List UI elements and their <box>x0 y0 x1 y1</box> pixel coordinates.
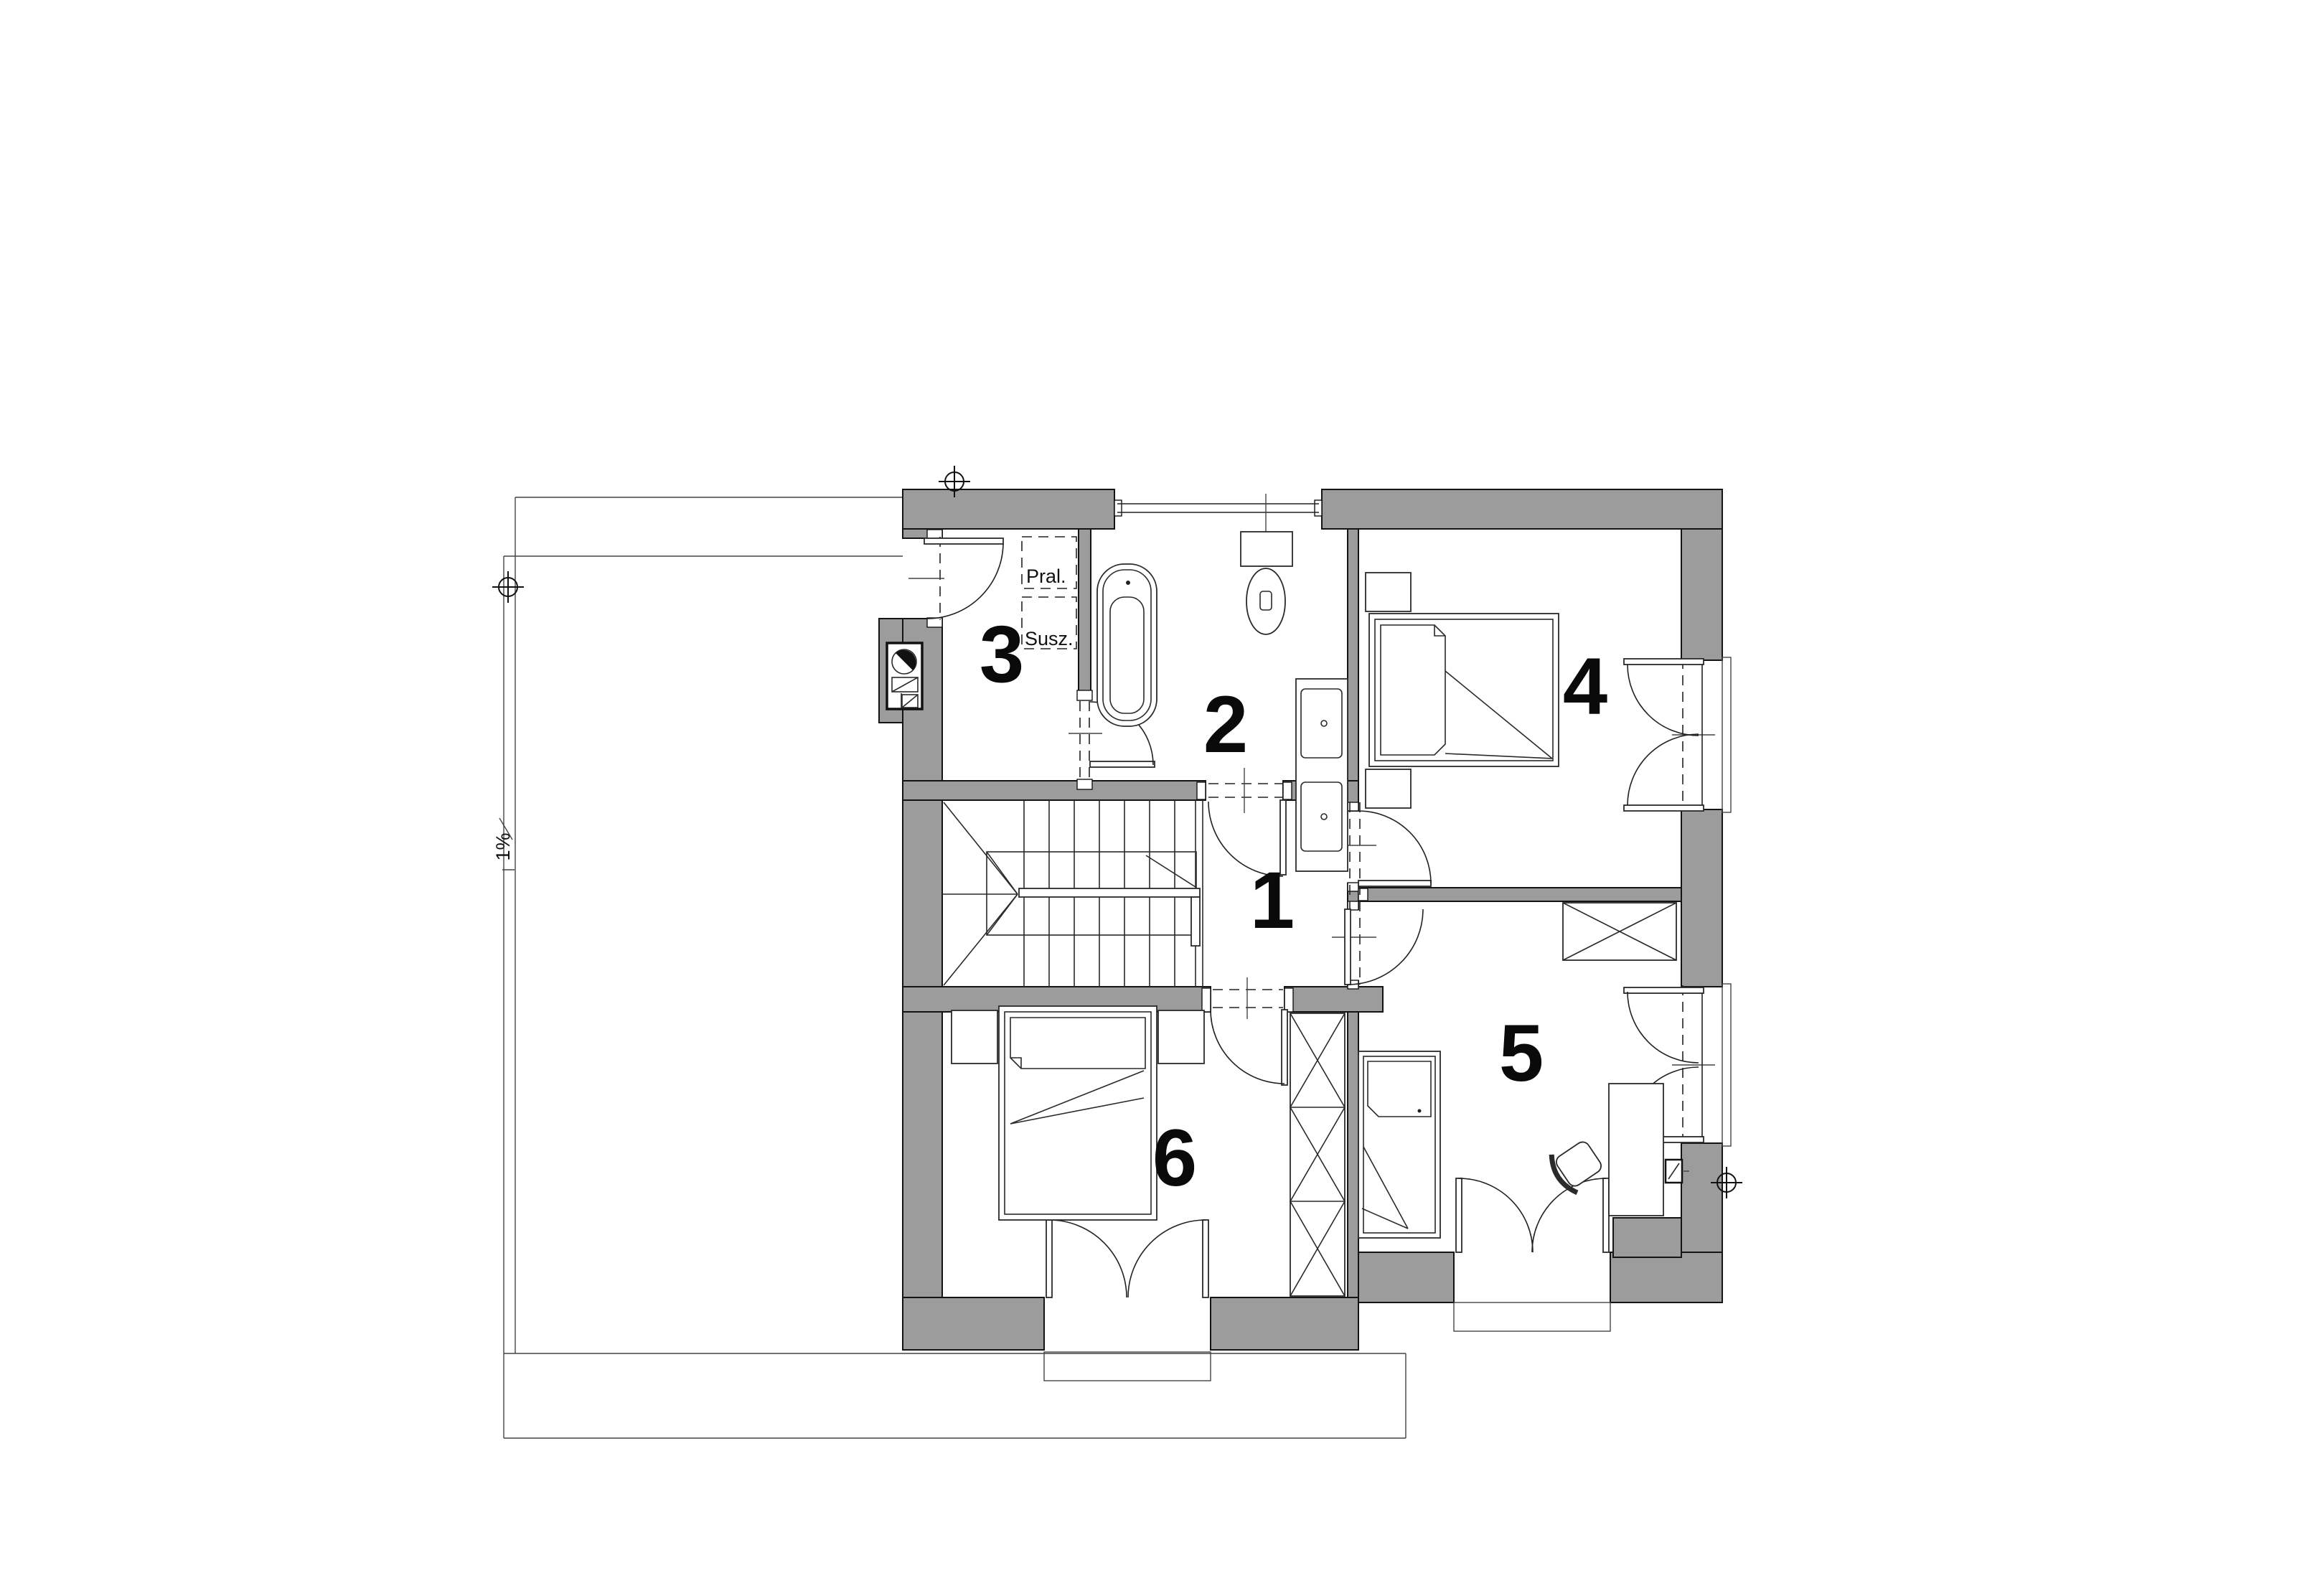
floor-plan-page: 1% <box>0 0 2320 1596</box>
desk-chair <box>1546 1135 1607 1197</box>
stair-handrail <box>1019 888 1200 946</box>
washer-label: Pral. <box>1026 565 1066 587</box>
room-label-bedroom6: 6 <box>1152 1113 1197 1203</box>
window-room4-east <box>1624 659 1704 811</box>
window-room6-south <box>1044 1220 1211 1381</box>
east-window-sills <box>1722 657 1731 1146</box>
floor-plan-canvas: 1% <box>0 0 2320 1596</box>
desk <box>1609 1084 1663 1216</box>
toilet <box>1241 532 1292 634</box>
stair-direction-line <box>1146 855 1196 887</box>
window-room5-south <box>1454 1178 1610 1331</box>
appliance-labels: Pral. Susz. <box>1025 565 1074 649</box>
room-label-bedroom4: 4 <box>1563 642 1607 731</box>
room-label-laundry: 3 <box>980 609 1024 699</box>
door-hall-room4 <box>1358 811 1431 886</box>
room-label-bedroom5: 5 <box>1499 1008 1544 1098</box>
door-hall-room5 <box>1345 909 1423 985</box>
bathtub <box>1097 564 1157 726</box>
bed-room5 <box>1358 1051 1440 1238</box>
room-label-bathroom: 2 <box>1203 680 1248 769</box>
electrical-panel <box>887 643 922 709</box>
wardrobe-room5 <box>1563 903 1676 960</box>
vanity-double-sink <box>1296 679 1348 871</box>
axis-marker-left <box>492 571 524 603</box>
door-hall-room6 <box>1211 1010 1287 1085</box>
wardrobe-room6 <box>1290 1013 1345 1296</box>
bed-room4 <box>1366 573 1559 808</box>
slope-label: 1% <box>492 832 514 860</box>
staircase <box>942 800 1203 987</box>
dryer-label: Susz. <box>1025 628 1074 649</box>
room-label-hall: 1 <box>1250 855 1295 945</box>
